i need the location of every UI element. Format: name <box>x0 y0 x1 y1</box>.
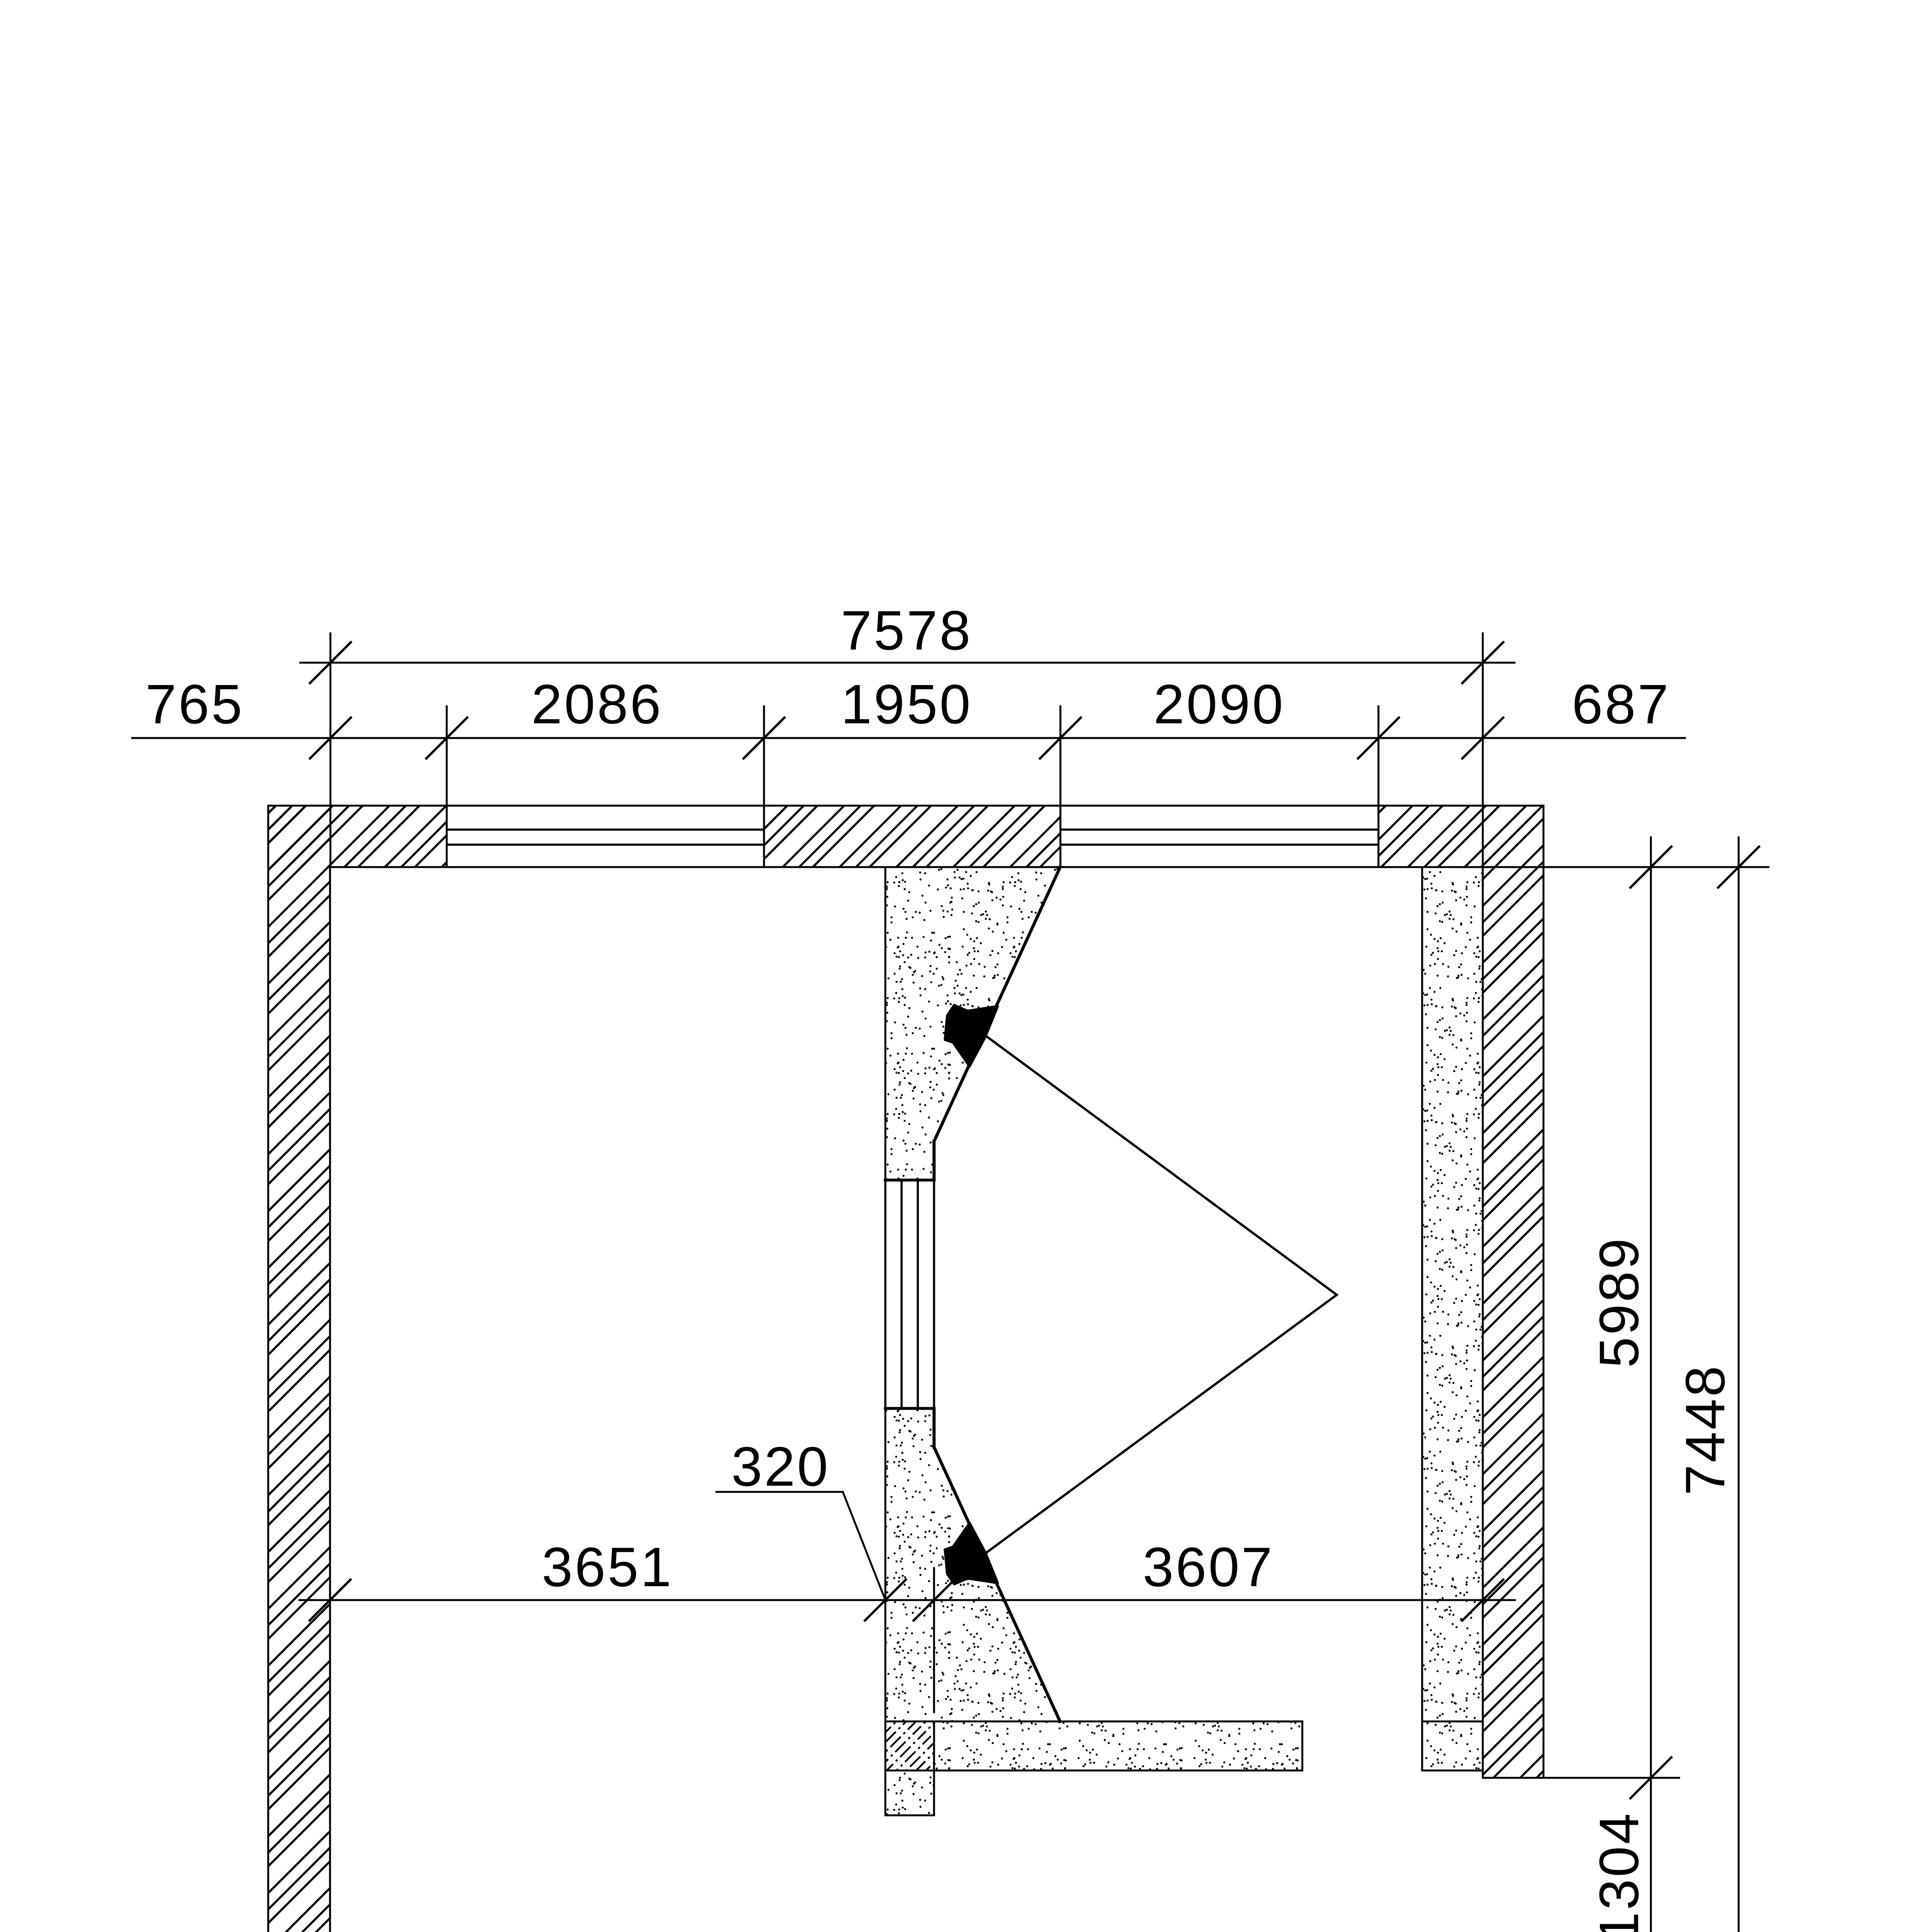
svg-text:3607: 3607 <box>1143 1536 1274 1598</box>
svg-text:320: 320 <box>731 1435 830 1498</box>
svg-text:2090: 2090 <box>1154 673 1285 735</box>
svg-text:687: 687 <box>1572 673 1670 735</box>
svg-text:7578: 7578 <box>841 599 972 662</box>
svg-text:1950: 1950 <box>841 673 972 735</box>
svg-text:1304: 1304 <box>1588 1811 1650 1932</box>
svg-text:3651: 3651 <box>542 1536 673 1598</box>
svg-text:7448: 7448 <box>1674 1364 1736 1495</box>
svg-text:2086: 2086 <box>531 673 663 735</box>
svg-text:5989: 5989 <box>1588 1236 1650 1368</box>
svg-text:765: 765 <box>145 673 244 735</box>
